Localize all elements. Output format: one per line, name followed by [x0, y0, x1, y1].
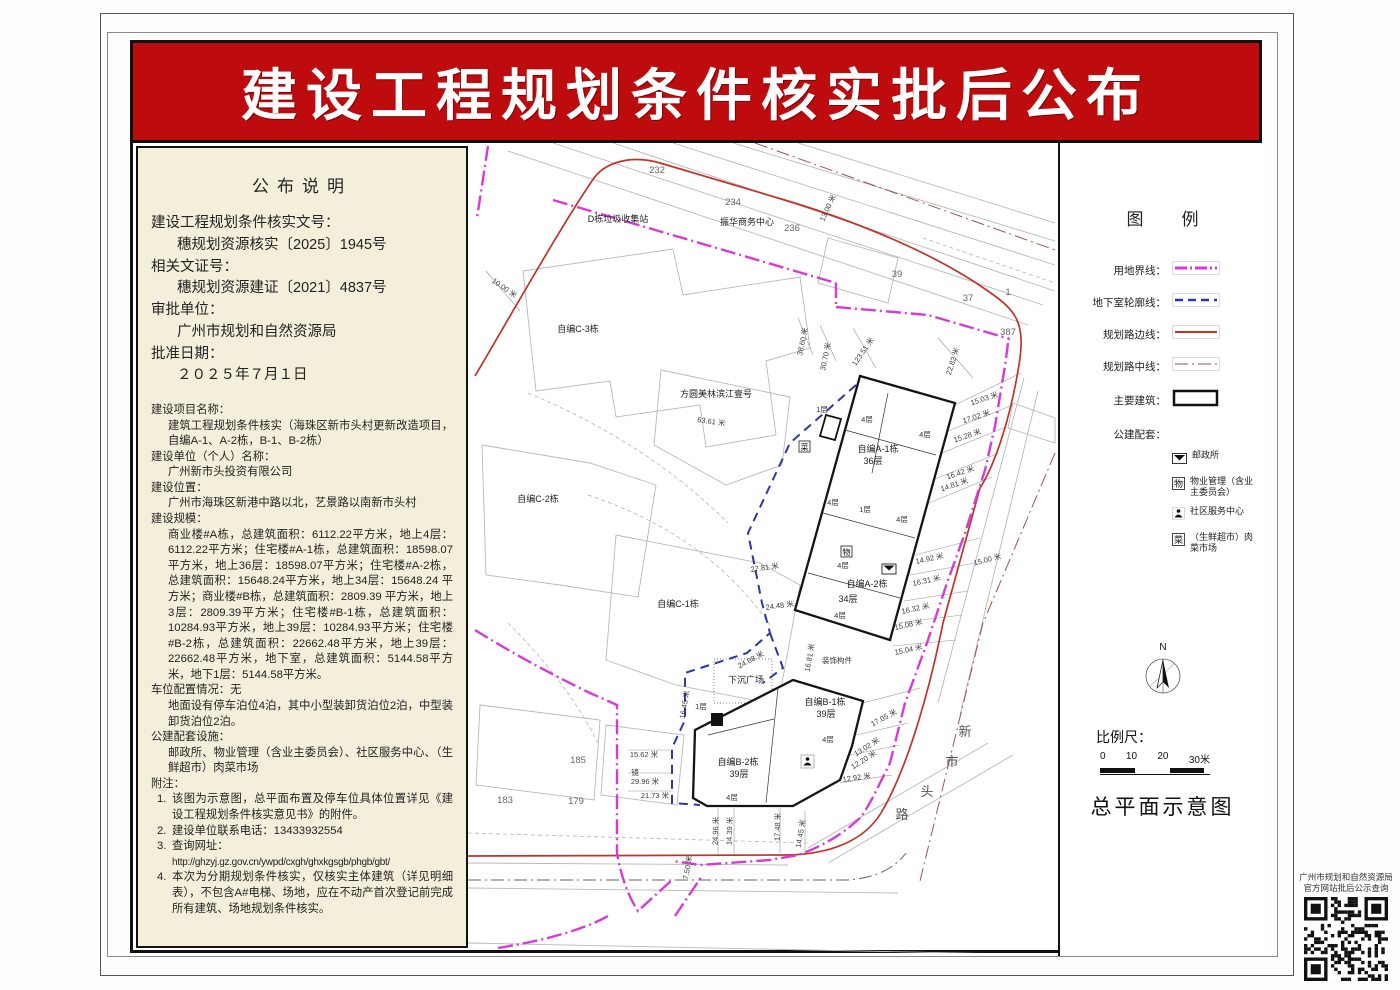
field-value: 建筑工程规划条件核实（海珠区新市头村更新改造项目，自编A-1、A-2栋，B-1、…	[168, 419, 453, 450]
legend-swatch-boundary	[1172, 261, 1220, 280]
drawing-sheet: 建设工程规划条件核实批后公布 公布说明 建设工程规划条件核实文号： 穗规划资源核…	[130, 40, 1262, 953]
map-label: 24.48 米	[765, 598, 795, 612]
map-label: 15.00 米	[972, 550, 1002, 567]
map-label: 39	[892, 269, 903, 280]
qr-caption: 广州市规划和自然资源局 官方网站批后公示查询	[1297, 872, 1395, 894]
map-label: 4层	[861, 415, 873, 424]
site-plan-map: 菜物 232234振华商务中心23613.00 米D栋垃圾收集站39371387…	[468, 143, 1058, 953]
community-map-icon	[801, 755, 814, 768]
map-label: 17.02 米	[961, 407, 992, 425]
compass-needle	[1163, 660, 1169, 688]
north-compass: N	[1138, 638, 1188, 707]
field-label: 批准日期：	[151, 344, 453, 366]
map-label: 234	[725, 197, 741, 208]
public-item: 菜 （生鲜超市）肉菜市场	[1172, 532, 1253, 555]
map-label: 39层	[816, 709, 835, 719]
svg-text:菜: 菜	[801, 442, 809, 452]
map-label: 15.28 米	[952, 426, 983, 444]
map-label: 自编B-1栋	[804, 696, 845, 707]
banner-title-text: 建设工程规划条件核实批后公布	[241, 51, 1151, 132]
post-office-icon	[1172, 451, 1187, 469]
market-icon: 菜	[1172, 533, 1185, 551]
approval-info-fields: 建设工程规划条件核实文号： 穗规划资源核实〔2025〕1945号相关文证号： 穗…	[151, 213, 453, 387]
building-a-outline	[795, 376, 955, 640]
map-label: 振华商务中心	[720, 216, 774, 227]
map-label: 24.68 米	[736, 648, 766, 670]
community-center-icon	[1172, 507, 1185, 525]
map-label: 自编C-3栋	[557, 323, 599, 334]
note-item: 3. 查询网址：http://ghzyj.gz.gov.cn/ywpd/cxgh…	[157, 839, 453, 870]
svg-text:物: 物	[1174, 478, 1183, 489]
note-item: 4. 本次为分期规划条件核实，仅核实主体建筑（详见明细表），不包含A#电梯、场地…	[157, 870, 453, 917]
map-label: 自编A-2栋	[846, 578, 887, 589]
legend-rows: 用地界线： 地下室轮廓线： 规划路边线： 规划路中线： 主要建筑： 公建配套： …	[1074, 261, 1253, 561]
public-item: 物 物业管理（含业主委员会）	[1172, 476, 1253, 499]
property-mgmt-icon: 物	[1172, 477, 1185, 495]
map-label: 15.04 米	[893, 641, 923, 657]
project-info-fields: 建设项目名称： 建筑工程规划条件核实（海珠区新市头村更新改造项目，自编A-1、A…	[151, 403, 453, 917]
map-label: 下沉广场	[728, 674, 764, 685]
map-label: 387	[1000, 327, 1016, 338]
qr-code	[1304, 897, 1388, 981]
map-label: 自编C-2栋	[517, 493, 559, 504]
map-label: 16.81 米	[802, 642, 817, 672]
announcement-panel: 公布说明 建设工程规划条件核实文号： 穗规划资源核实〔2025〕1945号相关文…	[136, 146, 468, 948]
field-value: 穗规划资源建证〔2021〕4837号	[151, 278, 453, 300]
map-label: 4层	[827, 498, 839, 507]
field-value: 穗规划资源核实〔2025〕1945号	[151, 235, 453, 257]
query-url: http://ghzyj.gz.gov.cn/ywpd/cxgh/ghxkgsg…	[172, 857, 390, 868]
map-label: 183	[497, 795, 513, 806]
map-label: 装饰构件	[822, 655, 852, 665]
map-label: 236	[784, 223, 800, 234]
legend-swatch-basement	[1172, 293, 1220, 312]
field-label: 车位配置情况：无	[151, 683, 453, 699]
map-label: 13.00 米	[817, 192, 838, 222]
legend-item-boundary: 用地界线：	[1074, 261, 1253, 280]
legend-swatch-building	[1172, 389, 1220, 412]
svg-text:菜: 菜	[1174, 534, 1183, 545]
map-label: 123.51 米	[849, 335, 876, 368]
map-label: 自编B-2栋	[717, 756, 758, 767]
map-label: 30.70 米	[817, 341, 833, 371]
legend-item-building: 主要建筑：	[1074, 389, 1253, 412]
map-label: 头	[920, 784, 933, 799]
field-value: 商业楼#A栋，总建筑面积：6112.22平方米，地上4层：6112.22平方米；…	[168, 528, 453, 684]
map-label: 4层	[726, 793, 738, 802]
map-label: 1	[1005, 287, 1010, 298]
legend-item-public: 公建配套：	[1074, 425, 1253, 443]
map-label: 17.05 米	[869, 706, 899, 728]
legend-title: 图例	[1060, 205, 1265, 230]
legend-item-road-edge: 规划路边线：	[1074, 325, 1253, 344]
map-label: 39层	[729, 769, 748, 779]
map-title: 总平面示意图	[1060, 791, 1265, 821]
map-label: 4层	[896, 515, 908, 524]
svg-text:物: 物	[843, 547, 851, 557]
property-map-icon: 物	[841, 546, 852, 557]
map-label: 15.08 米	[893, 616, 923, 632]
public-facility-rows: 邮政所 物 物业管理（含业主委员会） 社区服务中心 菜 （生鲜超市）肉菜市场	[1172, 450, 1253, 554]
building-a-podium-block	[820, 415, 841, 440]
legend-swatch-public	[1172, 425, 1220, 443]
map-label: 29.96 米	[631, 776, 660, 786]
map-label: 4层	[919, 430, 931, 439]
map-label: 14.92 米	[914, 550, 944, 566]
public-notice-page: { "page": { "banner_title": "建设工程规划条件核实批…	[0, 0, 1400, 990]
legend-item-road-center: 规划路中线：	[1074, 357, 1253, 376]
map-label: 16.32 米	[900, 600, 930, 616]
map-label: 15.62 米	[630, 749, 659, 759]
field-value: 邮政所、物业管理（含业主委员会）、社区服务中心、（生鲜超市）肉菜市场	[168, 746, 453, 777]
map-label: 185	[570, 755, 586, 766]
field-value: 广州新市头投资有限公司	[168, 465, 453, 481]
scale-bar: 0102030米	[1100, 751, 1210, 775]
map-label: 16.45 米	[677, 689, 692, 719]
post-map-icon	[882, 564, 896, 574]
field-label: 审批单位：	[151, 300, 453, 322]
map-label: 232	[649, 165, 665, 176]
road-centerline-top	[755, 143, 1055, 250]
title-banner: 建设工程规划条件核实批后公布	[133, 43, 1259, 143]
field-value: 地面设有停车泊位4泊，其中小型装卸货泊位2泊，中型装卸货泊位2泊。	[168, 699, 453, 730]
map-label: 16.31 米	[911, 572, 941, 588]
map-label: 4层	[837, 561, 849, 570]
map-label: 179	[568, 796, 584, 807]
public-item: 社区服务中心	[1172, 506, 1253, 525]
map-label: 63.61 米	[697, 414, 727, 428]
surrounding-parcels	[468, 143, 1055, 953]
legend-swatch-road-edge	[1172, 325, 1220, 344]
field-label: 建设规模：	[151, 512, 453, 528]
field-label: 相关文证号：	[151, 257, 453, 279]
map-label: 1层	[859, 505, 871, 514]
map-label: 10.00 米	[490, 275, 519, 300]
market-map-icon: 菜	[799, 441, 810, 452]
map-label: 36层	[863, 456, 882, 466]
north-label: N	[1159, 642, 1166, 653]
note-item: 1. 该图为示意图，总平面布置及停车位具体位置详见《建设工程规划条件核实意见书》…	[157, 792, 453, 823]
map-label: 12.92 米	[842, 770, 872, 784]
field-label: 公建配套设施：	[151, 730, 453, 746]
map-label: 4层	[834, 611, 846, 620]
map-label: 新	[958, 724, 971, 739]
map-label: 自编A-1栋	[857, 443, 898, 454]
qr-caption-line2: 官方网站批后公示查询	[1303, 883, 1388, 893]
public-item: 邮政所	[1172, 450, 1253, 469]
qr-block: 广州市规划和自然资源局 官方网站批后公示查询	[1297, 872, 1395, 986]
scale-bar-segments	[1100, 768, 1210, 775]
legend-item-basement: 地下室轮廓线：	[1074, 293, 1253, 312]
map-label: 34层	[838, 594, 857, 604]
map-label: 15.03 米	[969, 389, 1000, 407]
map-label: 1层	[695, 702, 707, 711]
notes-label: 附注：	[151, 777, 453, 793]
field-value: 广州市规划和自然资源局	[151, 322, 453, 344]
map-label: 7.50 米	[680, 854, 694, 880]
field-label: 建设位置：	[151, 481, 453, 497]
scale-label: 比例尺：	[1096, 727, 1152, 747]
map-label: 1层	[816, 405, 828, 414]
scale-ticks: 0102030米	[1100, 751, 1210, 766]
field-label: 建设单位（个人）名称：	[151, 450, 453, 466]
field-value: 广州市海珠区新港中路以北，艺景路以南新市头村	[168, 496, 453, 512]
site-plan-svg: 菜物 232234振华商务中心23613.00 米D栋垃圾收集站39371387…	[468, 143, 1058, 953]
map-label: 37	[963, 293, 974, 304]
map-label: 17.48 米	[772, 812, 783, 841]
map-label: 路	[895, 807, 908, 822]
map-label: 市	[945, 754, 958, 769]
map-label: 24.96 米	[710, 816, 721, 845]
field-label: 建设项目名称：	[151, 403, 453, 419]
map-label: 22.82 米	[943, 346, 961, 377]
map-label: 镜	[631, 767, 639, 777]
legend-panel: 图例 用地界线： 地下室轮廓线： 规划路边线： 规划路中线： 主要建筑： 公建配…	[1058, 143, 1265, 956]
field-label: 建设工程规划条件核实文号：	[151, 213, 453, 235]
elevator-core	[711, 713, 723, 726]
note-item: 2. 建设单位联系电话：13433932554	[157, 824, 453, 840]
map-label: 21.73 米	[641, 790, 670, 800]
map-label: 自编C-1栋	[657, 598, 699, 609]
map-label: D栋垃圾收集站	[588, 213, 649, 224]
map-label: 方圆美林滨江壹号	[680, 388, 752, 399]
map-label: 14.39 米	[724, 816, 735, 845]
qr-caption-line1: 广州市规划和自然资源局	[1299, 872, 1393, 882]
field-value: ２０２５年７月１日	[151, 365, 453, 387]
legend-swatch-road-center	[1172, 357, 1220, 376]
map-label: 4层	[822, 735, 834, 744]
announcement-title: 公布说明	[151, 172, 453, 197]
